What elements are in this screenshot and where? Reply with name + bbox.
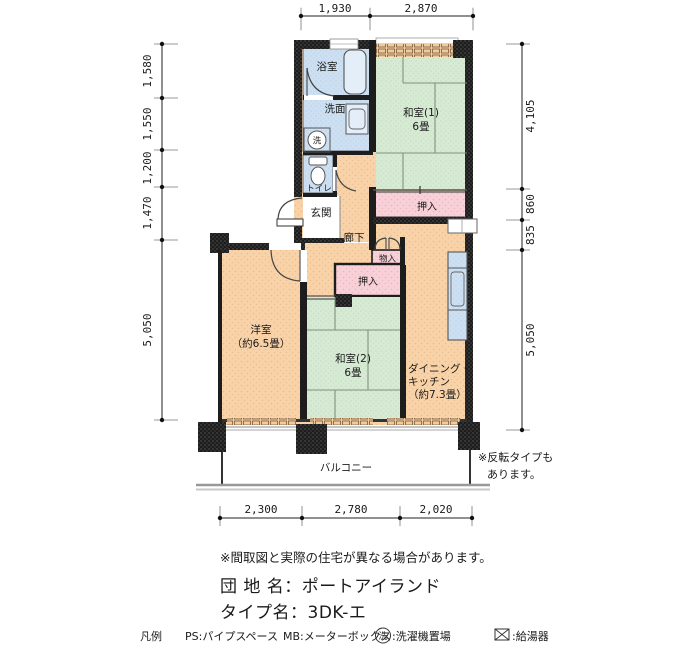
storage-label: 物入 xyxy=(379,254,397,265)
side-note-line1: ※反転タイプも xyxy=(478,451,553,464)
closet1-label: 押入 xyxy=(417,200,437,213)
jroom2-size-label: 6畳 xyxy=(344,367,362,379)
dim-top-1: 1,930 xyxy=(318,2,351,15)
legend-washer-mark: 洗 xyxy=(378,630,387,642)
dim-bottom-1: 2,300 xyxy=(244,503,277,516)
wall-jroom2-dk xyxy=(400,265,406,425)
window-dk xyxy=(448,219,477,233)
legend-boiler: :給湯器 xyxy=(512,629,549,643)
dim-top-2: 2,870 xyxy=(404,2,437,15)
dim-left-5: 5,050 xyxy=(141,313,154,346)
window-sash-wroom xyxy=(227,418,296,425)
dim-left-4: 1,470 xyxy=(141,196,154,229)
dim-right-1: 4,105 xyxy=(524,99,537,132)
dim-right-3: 835 xyxy=(524,225,537,245)
balcony-block-center xyxy=(296,424,327,454)
hall-label: 廊下 xyxy=(344,231,365,244)
toilet-label: トイレ xyxy=(306,184,332,194)
wash-label: 洗面 xyxy=(325,103,346,115)
wall-stub-jroom2 xyxy=(335,294,352,307)
legend: 凡例 PS:パイプスペース MB:メーターボックス 洗 :洗濯機置場 :給湯器 xyxy=(140,628,549,643)
toilet-tank-icon xyxy=(309,157,327,165)
dk-label-1: ダイニング・ xyxy=(408,362,471,375)
type-name-text: タイプ名：3DK-エ xyxy=(220,603,366,623)
wroom-label: 洋室 xyxy=(251,323,272,336)
washer-mark-label: 洗 xyxy=(313,136,322,147)
side-note: ※反転タイプも あります。 xyxy=(478,451,553,481)
wall-wroom-left xyxy=(218,250,222,422)
wroom-size-label: （約6.5畳） xyxy=(232,337,291,350)
dim-bottom-3: 2,020 xyxy=(419,503,452,516)
balcony-block-right xyxy=(458,422,480,450)
window-sash-jroom2 xyxy=(310,418,373,425)
jroom1-size-label: 6畳 xyxy=(412,121,430,133)
door-entrance-leaf xyxy=(277,219,303,226)
legend-washer: :洗濯機置場 xyxy=(392,629,451,643)
dim-left-2: 1,550 xyxy=(141,107,154,140)
wall-entrance-bottom xyxy=(294,238,344,243)
balcony-label: バルコニー xyxy=(320,462,372,474)
jroom2-label: 和室(2) xyxy=(335,352,371,365)
disclaimer-text: ※間取図と実際の住宅が異なる場合があります。 xyxy=(220,550,492,565)
toilet-bowl-icon xyxy=(311,167,325,185)
wall-storage-right xyxy=(400,237,405,267)
legend-ps: PS:パイプスペース xyxy=(185,630,278,643)
legend-title: 凡例 xyxy=(140,629,162,643)
veranda-strip xyxy=(376,44,458,57)
closet2-label: 押入 xyxy=(358,275,378,288)
doorgap-wroom xyxy=(269,243,301,250)
dim-right: 4,105 860 835 5,050 xyxy=(506,42,537,432)
bathtub xyxy=(344,50,366,94)
dim-left-1: 1,580 xyxy=(141,54,154,87)
floorplan-page: 浴室 洗面 洗 トイレ 玄関 廊下 和室(1) 6畳 押入 物入 押入 洋室 （… xyxy=(0,0,700,650)
veranda-sill xyxy=(376,38,458,44)
bath-label: 浴室 xyxy=(317,60,338,73)
dim-bottom: 2,300 2,780 2,020 xyxy=(218,503,474,526)
doorgap-bath xyxy=(304,95,333,100)
wall-divider-upper xyxy=(369,40,376,152)
boiler-box-icon xyxy=(495,629,509,640)
dk-label-2: キッチン xyxy=(408,376,450,388)
dim-left-3: 1,200 xyxy=(141,151,154,184)
dim-right-2: 860 xyxy=(524,194,537,214)
floorplan-drawing: 浴室 洗面 洗 トイレ 玄関 廊下 和室(1) 6畳 押入 物入 押入 洋室 （… xyxy=(0,0,700,650)
entrance-label: 玄関 xyxy=(311,206,332,219)
balcony-area xyxy=(222,430,471,485)
dim-left: 1,580 1,550 1,200 1,470 5,050 xyxy=(141,42,178,422)
estate-name-text: 団 地 名：ポートアイランド xyxy=(220,577,441,597)
dim-bottom-2: 2,780 xyxy=(334,503,367,516)
balcony-block-left xyxy=(198,422,226,452)
dim-top: 1,930 2,870 xyxy=(299,2,475,30)
dk-label-3: （約7.3畳） xyxy=(408,388,467,401)
jroom1-label: 和室(1) xyxy=(403,106,439,119)
dim-right-4: 5,050 xyxy=(524,323,537,356)
footer-text: ※間取図と実際の住宅が異なる場合があります。 団 地 名：ポートアイランド タイ… xyxy=(220,550,492,623)
wall-left-upper xyxy=(294,40,302,197)
window-sash-dk xyxy=(387,418,460,425)
side-note-line2: あります。 xyxy=(487,468,541,481)
doorgap-wroom2 xyxy=(300,250,307,282)
